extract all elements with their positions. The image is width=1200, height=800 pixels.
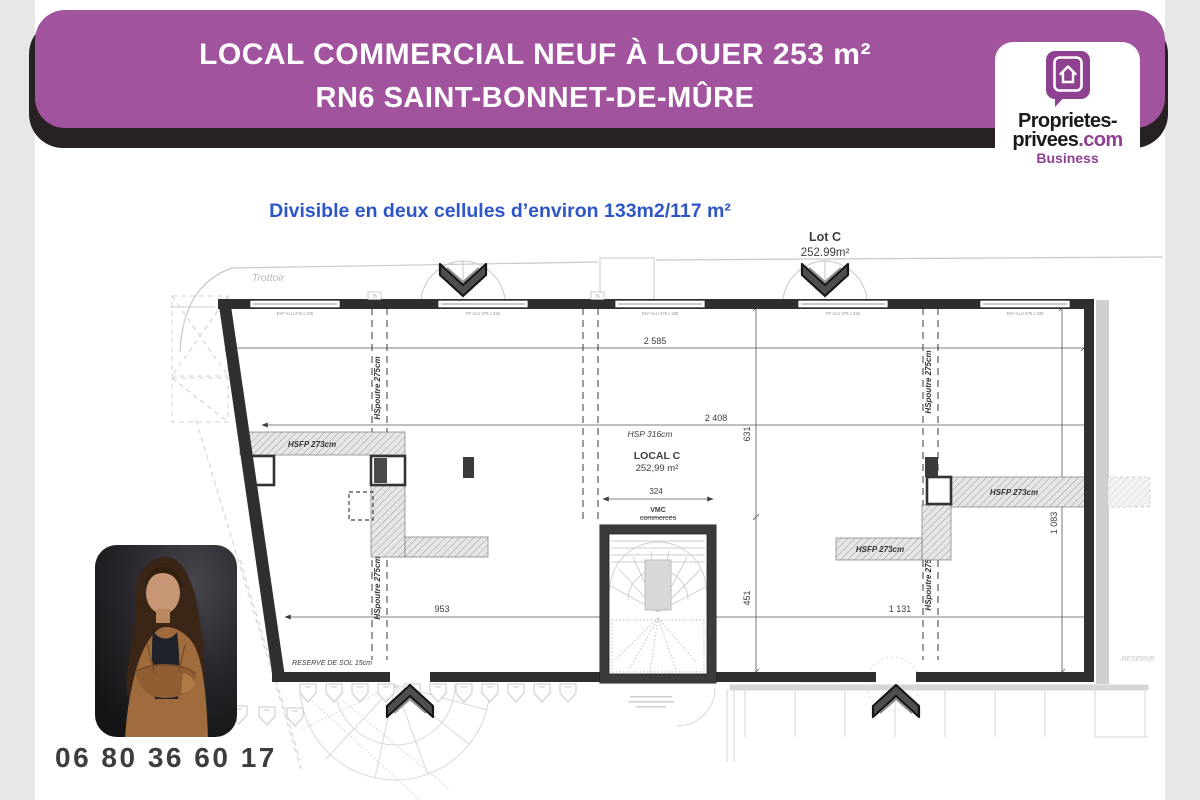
dim-631-label: 631 <box>742 426 752 441</box>
lot-c-title: Lot C <box>809 230 841 244</box>
hspoutre-label: HSpoutre 275cm <box>924 350 933 413</box>
hspoutre-label: HSpoutre 275cm <box>373 356 382 419</box>
dim-953-label: 953 <box>434 604 449 614</box>
hspoutre-label: HSpoutre 275cm <box>373 556 382 619</box>
window-label: PF ALU 275 x 225 <box>826 311 861 316</box>
window-label: DI-F ALU 275 x 225 <box>1007 311 1044 316</box>
logo-text-business: Business <box>1036 150 1098 167</box>
vmc-sublabel: commerces <box>640 515 677 522</box>
bottom-wall <box>711 672 876 682</box>
bottom-wall <box>272 672 390 682</box>
logo-text-com: .com <box>1078 129 1122 151</box>
flyer-page: LOCAL COMMERCIAL NEUF À LOUER 253 m² RN6… <box>0 0 1200 800</box>
logo-text-line1: Proprietes- <box>1018 111 1117 131</box>
logo-house-bubble-icon <box>1045 50 1091 108</box>
right-wall <box>1084 299 1094 682</box>
logo-text-line2: privees.com <box>1012 131 1122 150</box>
dim-324-label: 324 <box>649 487 663 496</box>
phone-number: 06 80 36 60 17 <box>55 742 277 774</box>
column <box>463 457 474 478</box>
wall-tag: 75 <box>595 294 600 299</box>
dim-2585-label: 2 585 <box>644 336 667 346</box>
trottoir-label: Trottoir <box>252 272 285 284</box>
column <box>925 457 938 477</box>
dim-2408-label: 2 408 <box>705 413 728 423</box>
window-label: PF ALU 275 x 225 <box>466 311 501 316</box>
dimension-labels: 2 585 2 408 953 1 131 631 451 1 083 324 <box>434 336 1059 614</box>
reserve-sol-label: RESERVE DE SOL 15cm <box>292 660 372 667</box>
agent-photo <box>95 545 237 737</box>
stairwell: VMC commerces <box>600 507 716 683</box>
dim-1083-label: 1 083 <box>1049 512 1059 535</box>
agent-portrait-illustration <box>95 545 237 737</box>
bottom-wall <box>916 672 1093 682</box>
dim-1131-label: 1 131 <box>889 604 912 614</box>
logo-text-privees: privees <box>1012 129 1078 151</box>
dim-451-label: 451 <box>742 590 752 605</box>
hsfp-label: HSFP 273cm <box>288 440 336 449</box>
hsfp-label: HSFP 273cm <box>856 545 904 554</box>
lot-c-area: 252.99m² <box>801 247 850 259</box>
agency-logo: Proprietes- privees.com Business <box>995 42 1140 179</box>
local-c-area: 252,99 m² <box>636 463 679 474</box>
window-label: DI-F ALU 275 x 225 <box>642 311 679 316</box>
hsp-label: HSP 316cm <box>627 429 672 439</box>
local-c-title: LOCAL C <box>634 450 681 462</box>
bottom-wall <box>430 672 604 682</box>
reserve-label: RESERVE <box>1121 656 1155 663</box>
hsfp-label: HSFP 273cm <box>990 488 1038 497</box>
vmc-label: VMC <box>650 507 666 514</box>
wall-tag: 75 <box>372 294 377 299</box>
window-label: DI-F ALU 275 x 225 <box>277 311 314 316</box>
